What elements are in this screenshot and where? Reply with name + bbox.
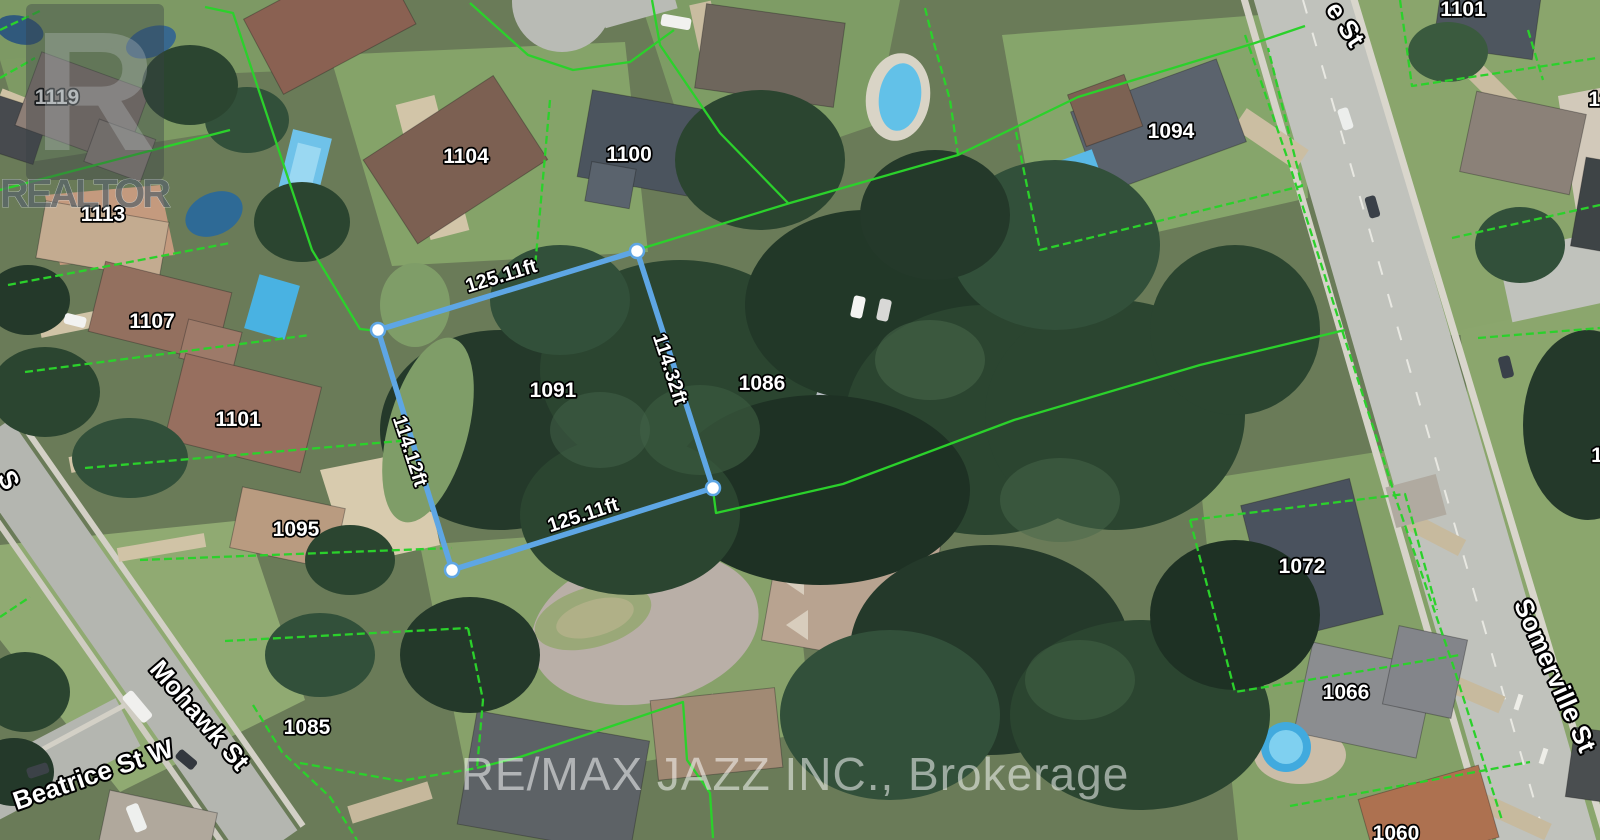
lot-corner-handle [371, 323, 385, 337]
brokerage-watermark: RE/MAX JAZZ INC., Brokerage [461, 748, 1130, 800]
realtor-logo-r: R [34, 0, 157, 187]
house-number-label: 12 [1588, 88, 1600, 111]
lot-corner-handle [445, 563, 459, 577]
house-number-label: 1101 [1440, 0, 1486, 21]
house-number-label: 1091 [530, 379, 577, 402]
aerial-listing-photo: 1119111311071101109510851104110010911086… [0, 0, 1600, 840]
house-number-label: 1086 [739, 372, 786, 395]
house-roof [585, 161, 636, 208]
lot-corner-handle [630, 244, 644, 258]
house-number-label: 1095 [273, 518, 320, 541]
house-number-label: 1066 [1323, 681, 1370, 704]
house-number-label: 1100 [606, 143, 652, 166]
house-number-label: 1085 [284, 716, 331, 739]
realtor-logo-text: REALTOR [0, 172, 172, 216]
house-number-label: 1094 [1148, 120, 1195, 143]
house-number-label: 1 [1591, 444, 1600, 467]
house-number-label: 1107 [129, 310, 175, 333]
house-number-label: 1104 [443, 145, 489, 168]
house-number-label: 1072 [1279, 555, 1326, 578]
aerial-map: 1119111311071101109510851104110010911086… [0, 0, 1600, 840]
house-number-label: 1101 [215, 408, 261, 431]
lot-corner-handle [706, 481, 720, 495]
house-number-label: 1060 [1373, 822, 1420, 840]
